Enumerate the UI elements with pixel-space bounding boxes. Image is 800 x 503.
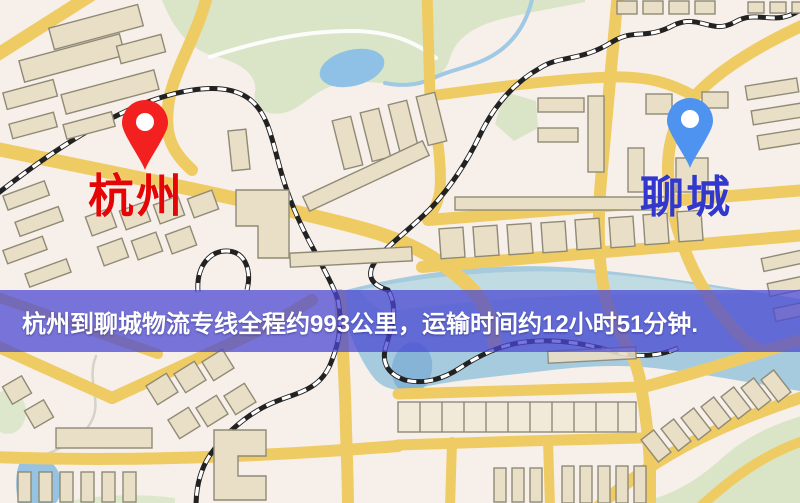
pin-body (667, 98, 713, 168)
pin-hole (136, 113, 154, 131)
route-info-banner: 杭州到聊城物流专线全程约993公里，运输时间约12小时51分钟. (0, 290, 800, 352)
map-canvas[interactable] (0, 0, 800, 503)
origin-city-label: 杭州 (88, 174, 184, 220)
route-info-text: 杭州到聊城物流专线全程约993公里，运输时间约12小时51分钟. (0, 304, 698, 339)
origin-pin[interactable] (115, 96, 175, 176)
destination-pin[interactable] (660, 94, 720, 174)
destination-city-label: 聊城 (640, 176, 732, 220)
map-screenshot: 杭州 聊城 杭州到聊城物流专线全程约993公里，运输时间约12小时51分钟. (0, 0, 800, 503)
pin-hole (681, 110, 699, 128)
pin-body (122, 100, 168, 170)
